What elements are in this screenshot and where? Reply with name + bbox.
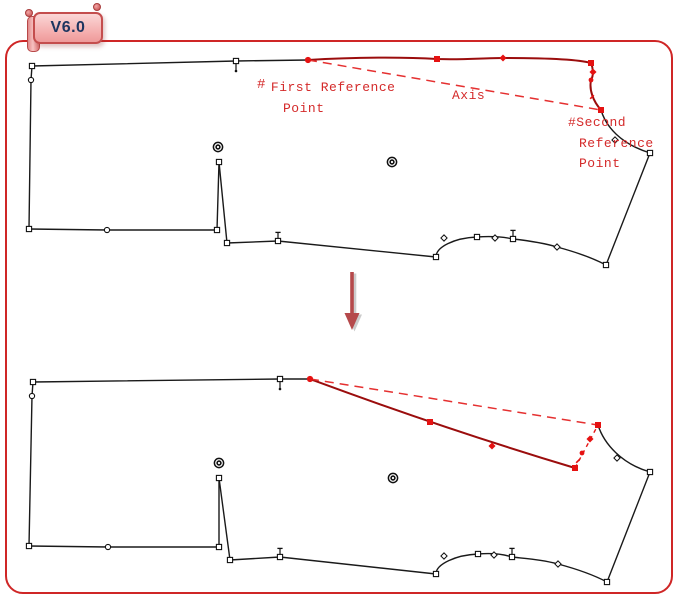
notch-pin-icon	[279, 382, 282, 391]
notch-pin-icon	[275, 232, 280, 238]
drill-hole-icon	[387, 157, 396, 166]
first-reference-text: First Reference	[271, 80, 396, 95]
badge-body: V6.0	[33, 12, 103, 44]
bottom-pattern-outline	[29, 379, 650, 582]
second-reference-label-line3: Point	[579, 156, 621, 171]
first-reference-point-marker	[305, 57, 311, 63]
notch-pin-icon	[235, 64, 238, 73]
version-badge-label: V6.0	[51, 19, 86, 37]
first-reference-label-line2: Point	[283, 101, 325, 116]
second-reference-point-marker	[595, 422, 601, 428]
notch-pin-icon	[510, 230, 515, 236]
second-reference-point-marker	[598, 107, 604, 113]
first-reference-hash: #	[257, 77, 266, 93]
bottom-pattern-point-markers	[26, 376, 652, 584]
drill-hole-icon	[388, 473, 397, 482]
drill-hole-icon	[213, 142, 222, 151]
bottom-pattern	[26, 376, 652, 585]
second-reference-label-line1: #Second	[568, 115, 626, 130]
badge-pin-icon	[25, 9, 33, 17]
down-arrow-icon	[345, 272, 363, 332]
first-reference-point-marker	[307, 376, 313, 382]
notch-pin-icon	[509, 548, 514, 554]
second-reference-label-line2: Reference	[579, 136, 654, 151]
first-reference-label-line1: #First Reference	[257, 80, 395, 96]
bottom-reference-point-markers	[307, 376, 601, 471]
axis-label: Axis	[452, 88, 485, 103]
drill-hole-icon	[214, 458, 223, 467]
notch-pin-icon	[277, 548, 282, 554]
bottom-rotated-edge	[310, 379, 575, 468]
version-badge: V6.0	[24, 3, 108, 53]
bottom-axis-dashed-line	[310, 379, 598, 425]
badge-pin-icon	[93, 3, 101, 11]
